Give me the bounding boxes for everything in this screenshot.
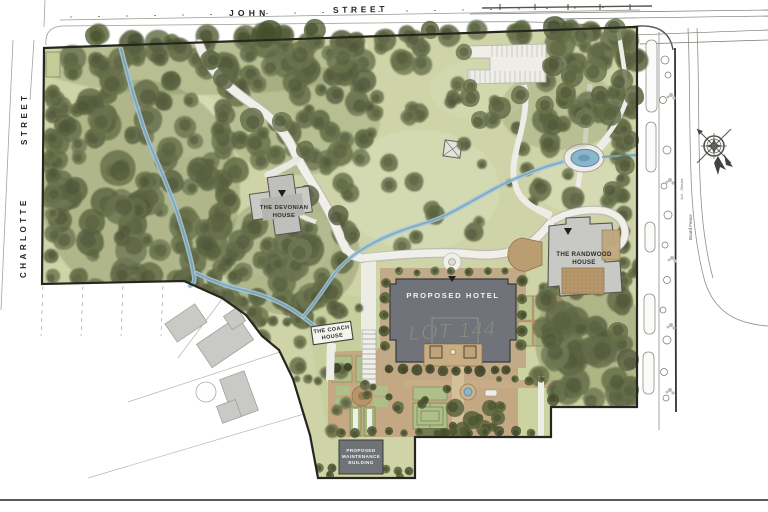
svg-text:THE RANDWOOD: THE RANDWOOD	[556, 251, 612, 258]
svg-text:PROPOSED: PROPOSED	[346, 448, 376, 453]
svg-text:STREET: STREET	[333, 4, 388, 15]
svg-text:LOT 144: LOT 144	[408, 318, 496, 346]
svg-text:PROPOSED HOTEL: PROPOSED HOTEL	[406, 291, 499, 300]
svg-text:MAINTENANCE: MAINTENANCE	[342, 454, 380, 459]
svg-text:HOUSE: HOUSE	[273, 213, 296, 219]
svg-text:Board Fence: Board Fence	[688, 214, 693, 240]
svg-text:HOUSE: HOUSE	[572, 259, 596, 266]
svg-text:4x4 - Shrubs: 4x4 - Shrubs	[680, 178, 684, 200]
svg-text:BUILDING: BUILDING	[348, 460, 373, 465]
svg-text:THE DEVONIAN: THE DEVONIAN	[260, 205, 309, 211]
svg-text:CHARLOTTE: CHARLOTTE	[19, 197, 28, 278]
svg-text:JOHN: JOHN	[229, 8, 269, 18]
svg-text:STREET: STREET	[20, 92, 29, 145]
